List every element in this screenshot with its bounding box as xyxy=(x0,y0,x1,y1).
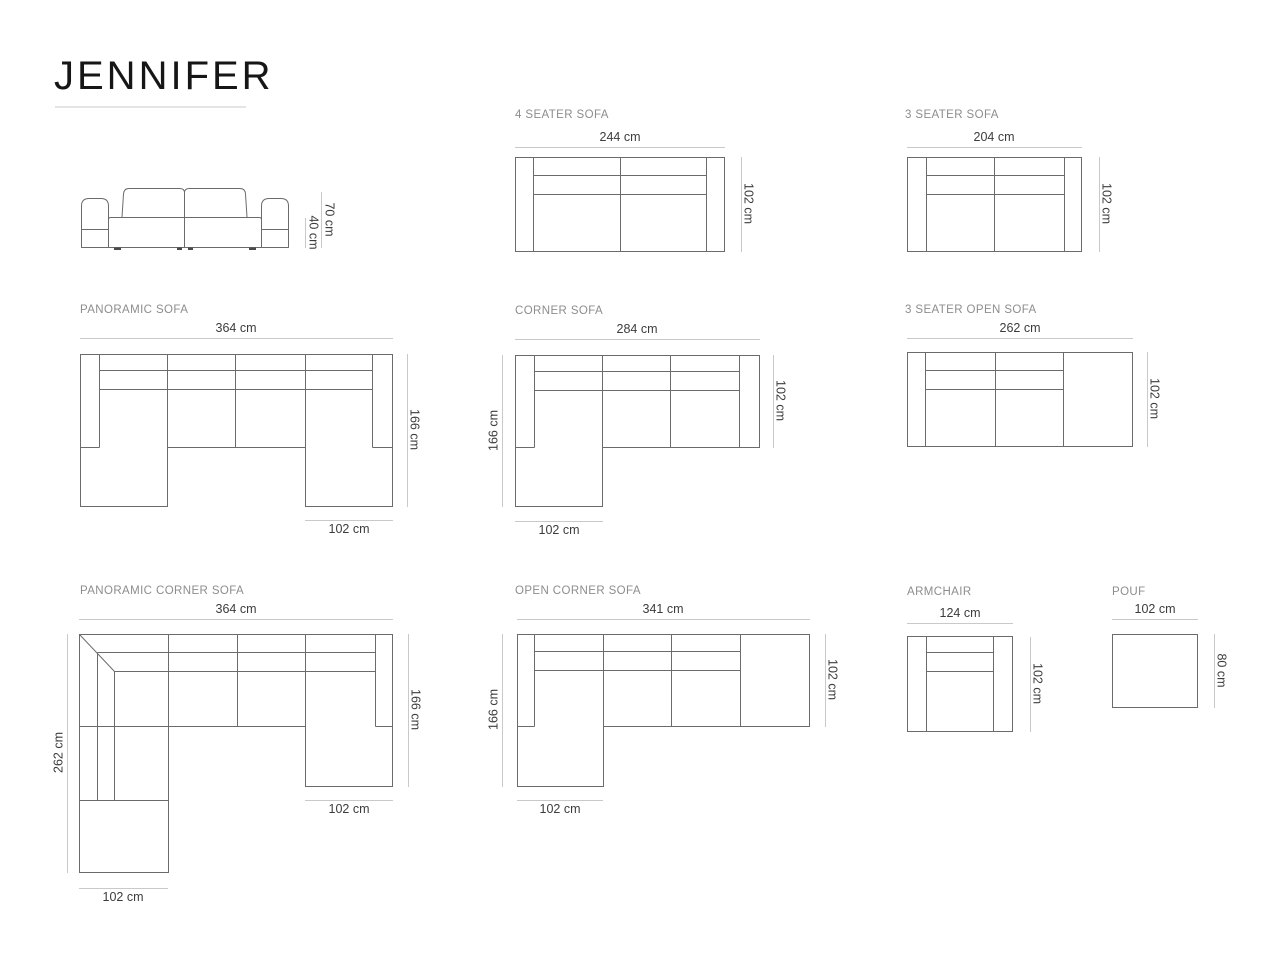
corner-body-depth-label: 102 cm xyxy=(773,369,788,433)
corner-chaise-dim-line xyxy=(515,521,603,522)
three-seater-open-title: 3 SEATER OPEN SOFA xyxy=(905,304,1037,317)
armchair-drawing xyxy=(907,636,1013,732)
open-corner-chaise-label: 102 cm xyxy=(528,802,592,817)
four-seater-depth-label: 102 cm xyxy=(741,172,756,236)
armchair-width-dim-line xyxy=(907,623,1013,624)
three-seater-depth-label: 102 cm xyxy=(1099,172,1114,236)
sofa-front-view-drawing xyxy=(78,185,292,251)
three-seater-open-drawing xyxy=(907,352,1133,447)
open-corner-width-dim-line xyxy=(517,619,810,620)
open-corner-drawing xyxy=(517,634,810,787)
four-seater-width-label: 244 cm xyxy=(588,130,652,145)
page-title: JENNIFER xyxy=(54,56,274,96)
four-seater-title: 4 SEATER SOFA xyxy=(515,109,609,122)
panoramic-corner-left-depth-label: 262 cm xyxy=(52,721,67,785)
three-seater-width-label: 204 cm xyxy=(962,130,1026,145)
corner-title: CORNER SOFA xyxy=(515,305,603,318)
armchair-title: ARMCHAIR xyxy=(907,586,972,599)
open-corner-chaise-dim-line xyxy=(517,800,603,801)
panoramic-chaise-dim-line xyxy=(305,520,393,521)
armchair-width-label: 124 cm xyxy=(928,606,992,621)
four-seater-drawing xyxy=(515,157,725,252)
open-corner-title: OPEN CORNER SOFA xyxy=(515,585,641,598)
panoramic-corner-right-chaise-label: 102 cm xyxy=(317,802,381,817)
three-seater-open-width-label: 262 cm xyxy=(988,321,1052,336)
panoramic-corner-bottom-dim-line xyxy=(79,888,168,889)
armchair-depth-label: 102 cm xyxy=(1030,652,1045,716)
three-seater-open-depth-label: 102 cm xyxy=(1147,367,1162,431)
panoramic-corner-title: PANORAMIC CORNER SOFA xyxy=(80,585,244,598)
panoramic-corner-width-label: 364 cm xyxy=(204,602,268,617)
title-underline xyxy=(55,106,246,108)
corner-width-label: 284 cm xyxy=(605,322,669,337)
panoramic-corner-left-depth-dim-line xyxy=(67,634,68,873)
corner-depth-dim-line xyxy=(502,355,503,507)
three-seater-width-dim-line xyxy=(907,147,1082,148)
front-view-seat-height-label: 40 cm xyxy=(306,201,321,265)
panoramic-depth-label: 166 cm xyxy=(407,398,422,462)
three-seater-open-width-dim-line xyxy=(907,338,1133,339)
corner-drawing xyxy=(515,355,760,507)
four-seater-width-dim-line xyxy=(515,147,725,148)
panoramic-corner-width-dim-line xyxy=(79,619,393,620)
pouf-width-label: 102 cm xyxy=(1123,602,1187,617)
pouf-depth-label: 80 cm xyxy=(1214,639,1229,703)
pouf-width-dim-line xyxy=(1112,619,1198,620)
panoramic-corner-bottom-label: 102 cm xyxy=(91,890,155,905)
corner-depth-label: 166 cm xyxy=(487,399,502,463)
corner-chaise-label: 102 cm xyxy=(527,523,591,538)
pouf-drawing xyxy=(1112,634,1198,708)
panoramic-title: PANORAMIC SOFA xyxy=(80,304,188,317)
front-view-overall-height-label: 70 cm xyxy=(322,188,337,252)
panoramic-corner-right-depth-label: 166 cm xyxy=(408,678,423,742)
open-corner-width-label: 341 cm xyxy=(631,602,695,617)
open-corner-body-depth-label: 102 cm xyxy=(825,648,840,712)
panoramic-corner-drawing xyxy=(79,634,393,873)
pouf-title: POUF xyxy=(1112,586,1146,599)
three-seater-drawing xyxy=(907,157,1082,252)
panoramic-corner-right-chaise-dim-line xyxy=(305,800,393,801)
open-corner-depth-label: 166 cm xyxy=(487,678,502,742)
panoramic-drawing xyxy=(80,354,393,507)
panoramic-width-dim-line xyxy=(80,338,393,339)
panoramic-chaise-label: 102 cm xyxy=(317,522,381,537)
panoramic-width-label: 364 cm xyxy=(204,321,268,336)
three-seater-title: 3 SEATER SOFA xyxy=(905,109,999,122)
corner-width-dim-line xyxy=(515,339,760,340)
spec-sheet: JENNIFER 70 cm 40 cm 4 SEATER SOFA 244 c… xyxy=(0,0,1280,960)
open-corner-depth-dim-line xyxy=(502,634,503,787)
